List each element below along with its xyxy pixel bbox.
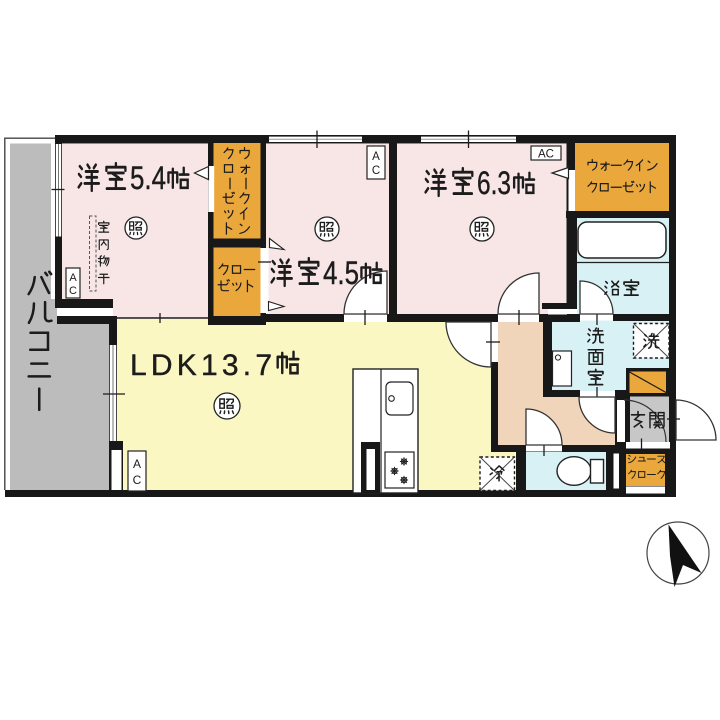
svg-text:A: A: [69, 272, 77, 284]
svg-text:C: C: [372, 165, 380, 177]
svg-text:C: C: [133, 473, 142, 487]
svg-text:A: A: [133, 457, 141, 471]
svg-text:AC: AC: [538, 149, 554, 161]
svg-text:6.3: 6.3: [477, 165, 511, 201]
svg-text:C: C: [69, 285, 77, 297]
svg-text:4.5: 4.5: [323, 255, 359, 291]
svg-text:A: A: [372, 151, 380, 163]
svg-text:5.4: 5.4: [130, 160, 166, 196]
svg-text:LDK13.7: LDK13.7: [130, 349, 272, 382]
